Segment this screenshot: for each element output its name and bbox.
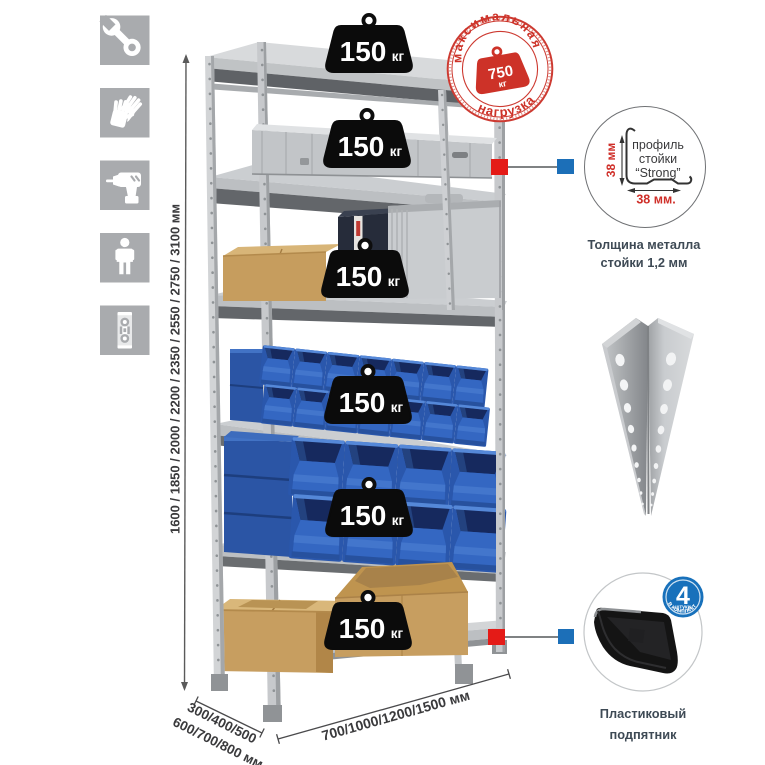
svg-text:38 мм: 38 мм <box>604 143 618 178</box>
svg-text:подпятник: подпятник <box>610 727 678 742</box>
svg-text:“Strong”: “Strong” <box>635 166 680 180</box>
svg-text:стойки: стойки <box>639 152 677 166</box>
svg-text:Пластиковый: Пластиковый <box>600 706 686 721</box>
svg-text:стойки 1,2 мм: стойки 1,2 мм <box>600 255 687 270</box>
svg-text:профиль: профиль <box>632 138 684 152</box>
svg-text:1600 / 1850 / 2000 / 2200 / 23: 1600 / 1850 / 2000 / 2200 / 2350 / 2550 … <box>168 204 183 534</box>
svg-text:38 мм.: 38 мм. <box>636 193 675 207</box>
svg-text:Толщина металла: Толщина металла <box>588 237 702 252</box>
